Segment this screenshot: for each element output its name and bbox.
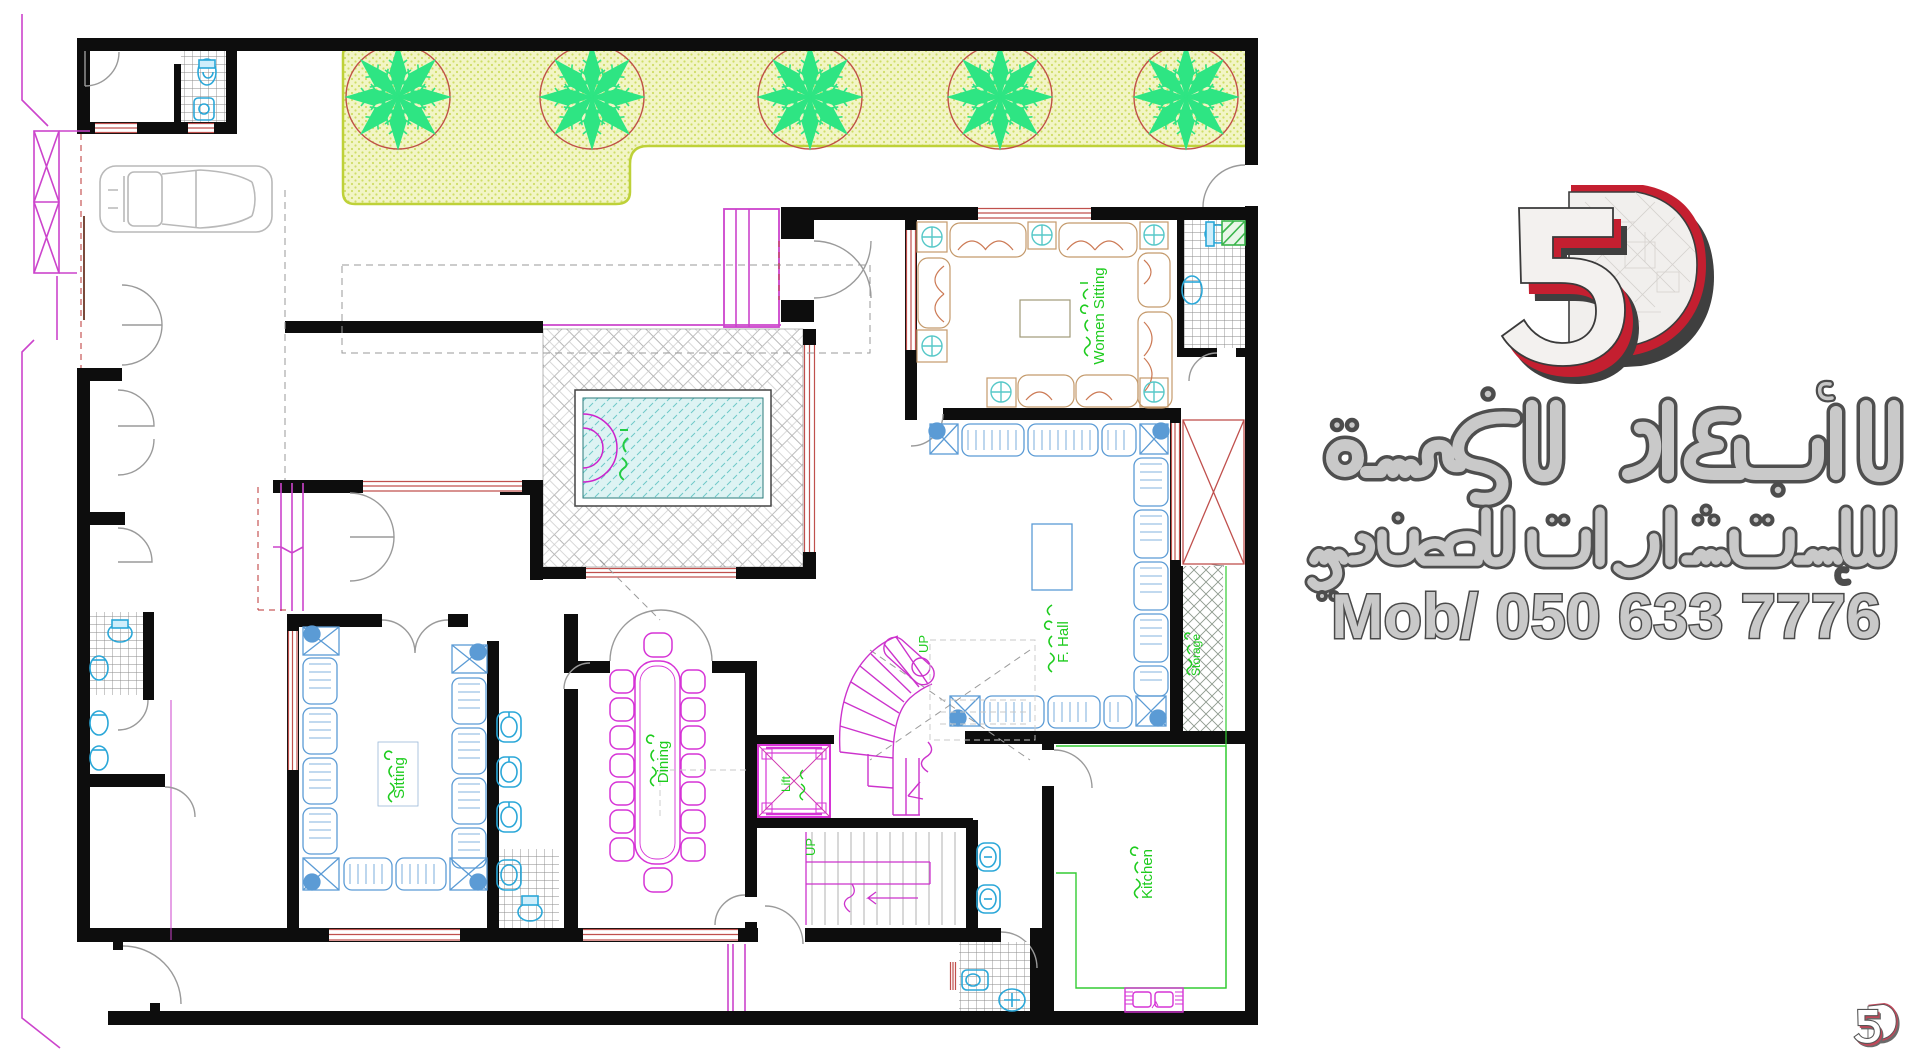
svg-text:Kitchen: Kitchen xyxy=(1139,849,1156,899)
svg-text:UP: UP xyxy=(803,838,818,856)
svg-text:Dining: Dining xyxy=(655,741,672,784)
svg-text:Mob/ 050 633 7776: Mob/ 050 633 7776 xyxy=(1331,582,1881,652)
svg-text:Storage: Storage xyxy=(1189,634,1203,676)
svg-text:Women Sitting: Women Sitting xyxy=(1091,267,1108,364)
svg-text:Lift: Lift xyxy=(779,775,793,792)
svg-text:Sitting: Sitting xyxy=(391,757,408,799)
svg-text:F. Hall: F. Hall xyxy=(1055,621,1072,663)
svg-text:UP: UP xyxy=(916,635,931,653)
